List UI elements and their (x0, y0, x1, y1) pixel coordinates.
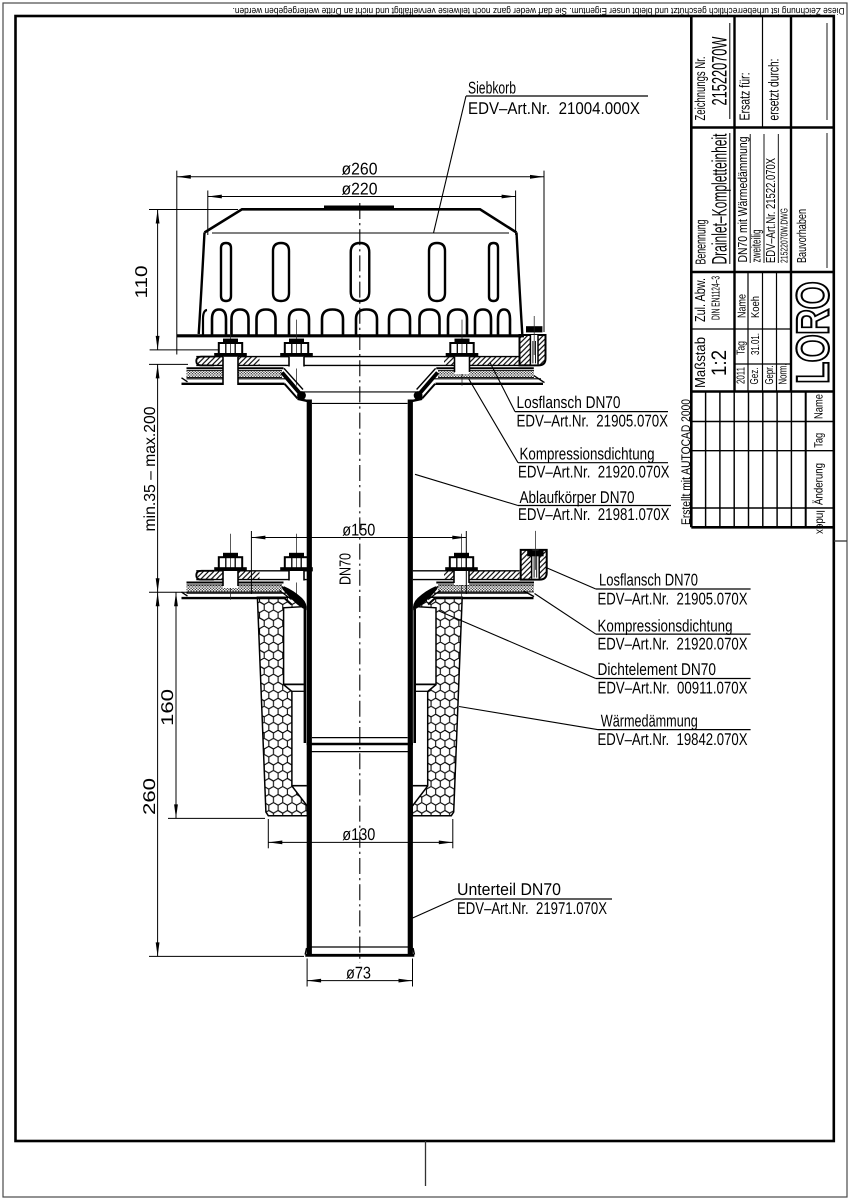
svg-text:Drainlet–Kompletteinheit: Drainlet–Kompletteinheit (709, 133, 732, 264)
svg-text:EDV–Art.Nr. 21920.070X: EDV–Art.Nr. 21920.070X (598, 635, 748, 654)
svg-text:ø130: ø130 (342, 825, 375, 844)
svg-text:DN70: DN70 (338, 553, 355, 585)
svg-text:EDV–Art.Nr. 21905.070X: EDV–Art.Nr. 21905.070X (517, 412, 669, 431)
svg-text:ø150: ø150 (342, 520, 375, 539)
svg-text:Ersatz für:: Ersatz für: (738, 73, 754, 121)
svg-text:Unterteil DN70: Unterteil DN70 (457, 880, 561, 899)
svg-text:1:2: 1:2 (708, 350, 731, 376)
svg-text:Losflansch DN70: Losflansch DN70 (517, 393, 621, 412)
svg-text:EDV–Art.Nr. 19842.070X: EDV–Art.Nr. 19842.070X (598, 730, 748, 749)
svg-text:EDV–Art.Nr. 00911.070X: EDV–Art.Nr. 00911.070X (598, 679, 748, 698)
svg-text:Tag: Tag (812, 433, 826, 448)
svg-text:EDV–Art.Nr. 21971.070X: EDV–Art.Nr. 21971.070X (457, 899, 607, 918)
svg-text:Index: Index (814, 510, 828, 534)
svg-text:Name: Name (737, 294, 749, 318)
svg-text:Kompressionsdichtung: Kompressionsdichtung (520, 445, 655, 464)
svg-text:Gez.: Gez. (749, 368, 761, 385)
svg-text:LORO: LORO (787, 282, 839, 384)
svg-text:Erstellt mit AUTOCAD 2000: Erstellt mit AUTOCAD 2000 (679, 399, 693, 525)
svg-text:DIN EN1124–3: DIN EN1124–3 (711, 276, 723, 320)
svg-text:EDV–Art.Nr. 21981.070X: EDV–Art.Nr. 21981.070X (518, 505, 670, 524)
svg-text:Name: Name (812, 394, 826, 419)
svg-text:Siebkorb: Siebkorb (468, 79, 516, 98)
svg-text:Wärmedämmung: Wärmedämmung (601, 712, 698, 731)
svg-text:ersetzt durch:: ersetzt durch: (767, 59, 783, 121)
svg-text:min.35 – max.200: min.35 – max.200 (142, 406, 159, 531)
svg-text:zweiteilig: zweiteilig (749, 230, 764, 263)
svg-text:EDV–Art.Nr. 21004.000X: EDV–Art.Nr. 21004.000X (468, 99, 640, 118)
svg-text:Kompressionsdichtung: Kompressionsdichtung (598, 617, 733, 636)
svg-text:Zul. Abw.: Zul. Abw. (693, 278, 709, 322)
svg-text:EDV–Art.Nr. 21522.070X: EDV–Art.Nr. 21522.070X (763, 158, 778, 263)
svg-text:Losflansch DN70: Losflansch DN70 (599, 570, 698, 589)
svg-text:Dichtelement DN70: Dichtelement DN70 (598, 660, 717, 679)
svg-text:Gepr.: Gepr. (764, 366, 776, 385)
svg-text:21522070W: 21522070W (708, 36, 731, 105)
svg-text:Änderung: Änderung (812, 463, 826, 505)
svg-text:ø73: ø73 (346, 964, 371, 983)
svg-text:Diese Zeichnung ist urheberrec: Diese Zeichnung ist urheberrechtlich ges… (233, 5, 845, 16)
svg-text:160: 160 (158, 689, 177, 726)
svg-text:21522070W.DWG: 21522070W.DWG (780, 208, 791, 263)
svg-text:EDV–Art.Nr. 21920.070X: EDV–Art.Nr. 21920.070X (518, 463, 670, 482)
svg-text:Maßstab: Maßstab (693, 337, 709, 388)
svg-text:110: 110 (132, 266, 151, 299)
svg-text:Bauvorhaben: Bauvorhaben (794, 209, 809, 263)
svg-text:260: 260 (140, 778, 159, 815)
svg-text:Koeh: Koeh (750, 296, 762, 318)
svg-text:2011: 2011 (736, 367, 748, 384)
svg-text:EDV–Art.Nr. 21905.070X: EDV–Art.Nr. 21905.070X (598, 590, 748, 609)
svg-text:ø220: ø220 (342, 180, 378, 199)
svg-text:31.01.: 31.01. (750, 333, 762, 355)
svg-text:Zeichnungs Nr.: Zeichnungs Nr. (693, 57, 709, 121)
svg-text:ø260: ø260 (342, 160, 378, 179)
svg-text:Benennung: Benennung (694, 220, 710, 265)
svg-text:Tag: Tag (736, 341, 748, 355)
